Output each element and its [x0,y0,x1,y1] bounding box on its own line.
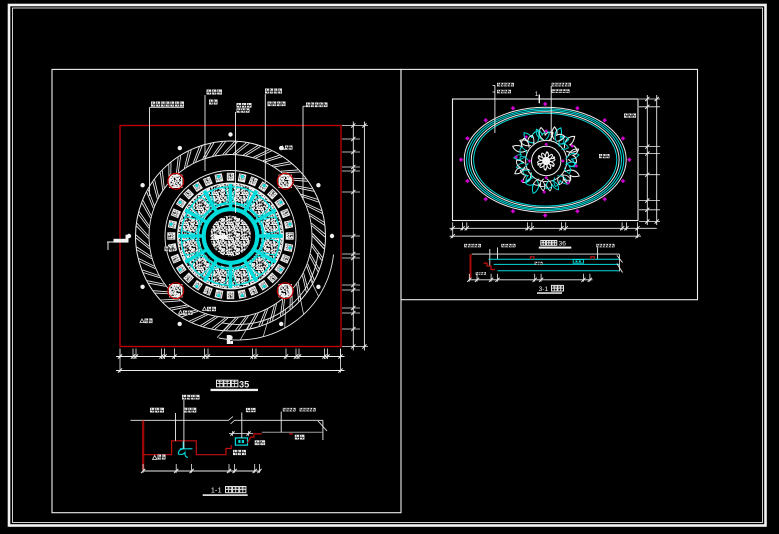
svg-text:1-1: 1-1 [211,486,222,495]
svg-text:35: 35 [239,379,249,389]
svg-text:36: 36 [559,241,567,248]
svg-text:3-1: 3-1 [539,286,549,293]
svg-text:1: 1 [535,91,539,98]
